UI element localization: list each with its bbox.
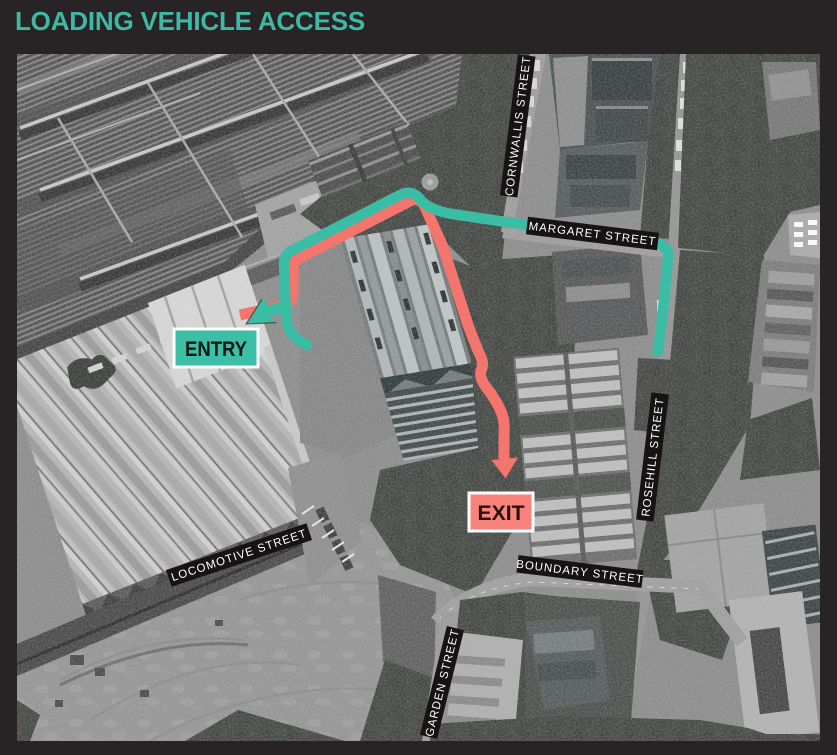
svg-text:ENTRY: ENTRY: [185, 337, 247, 361]
svg-text:EXIT: EXIT: [478, 501, 525, 525]
